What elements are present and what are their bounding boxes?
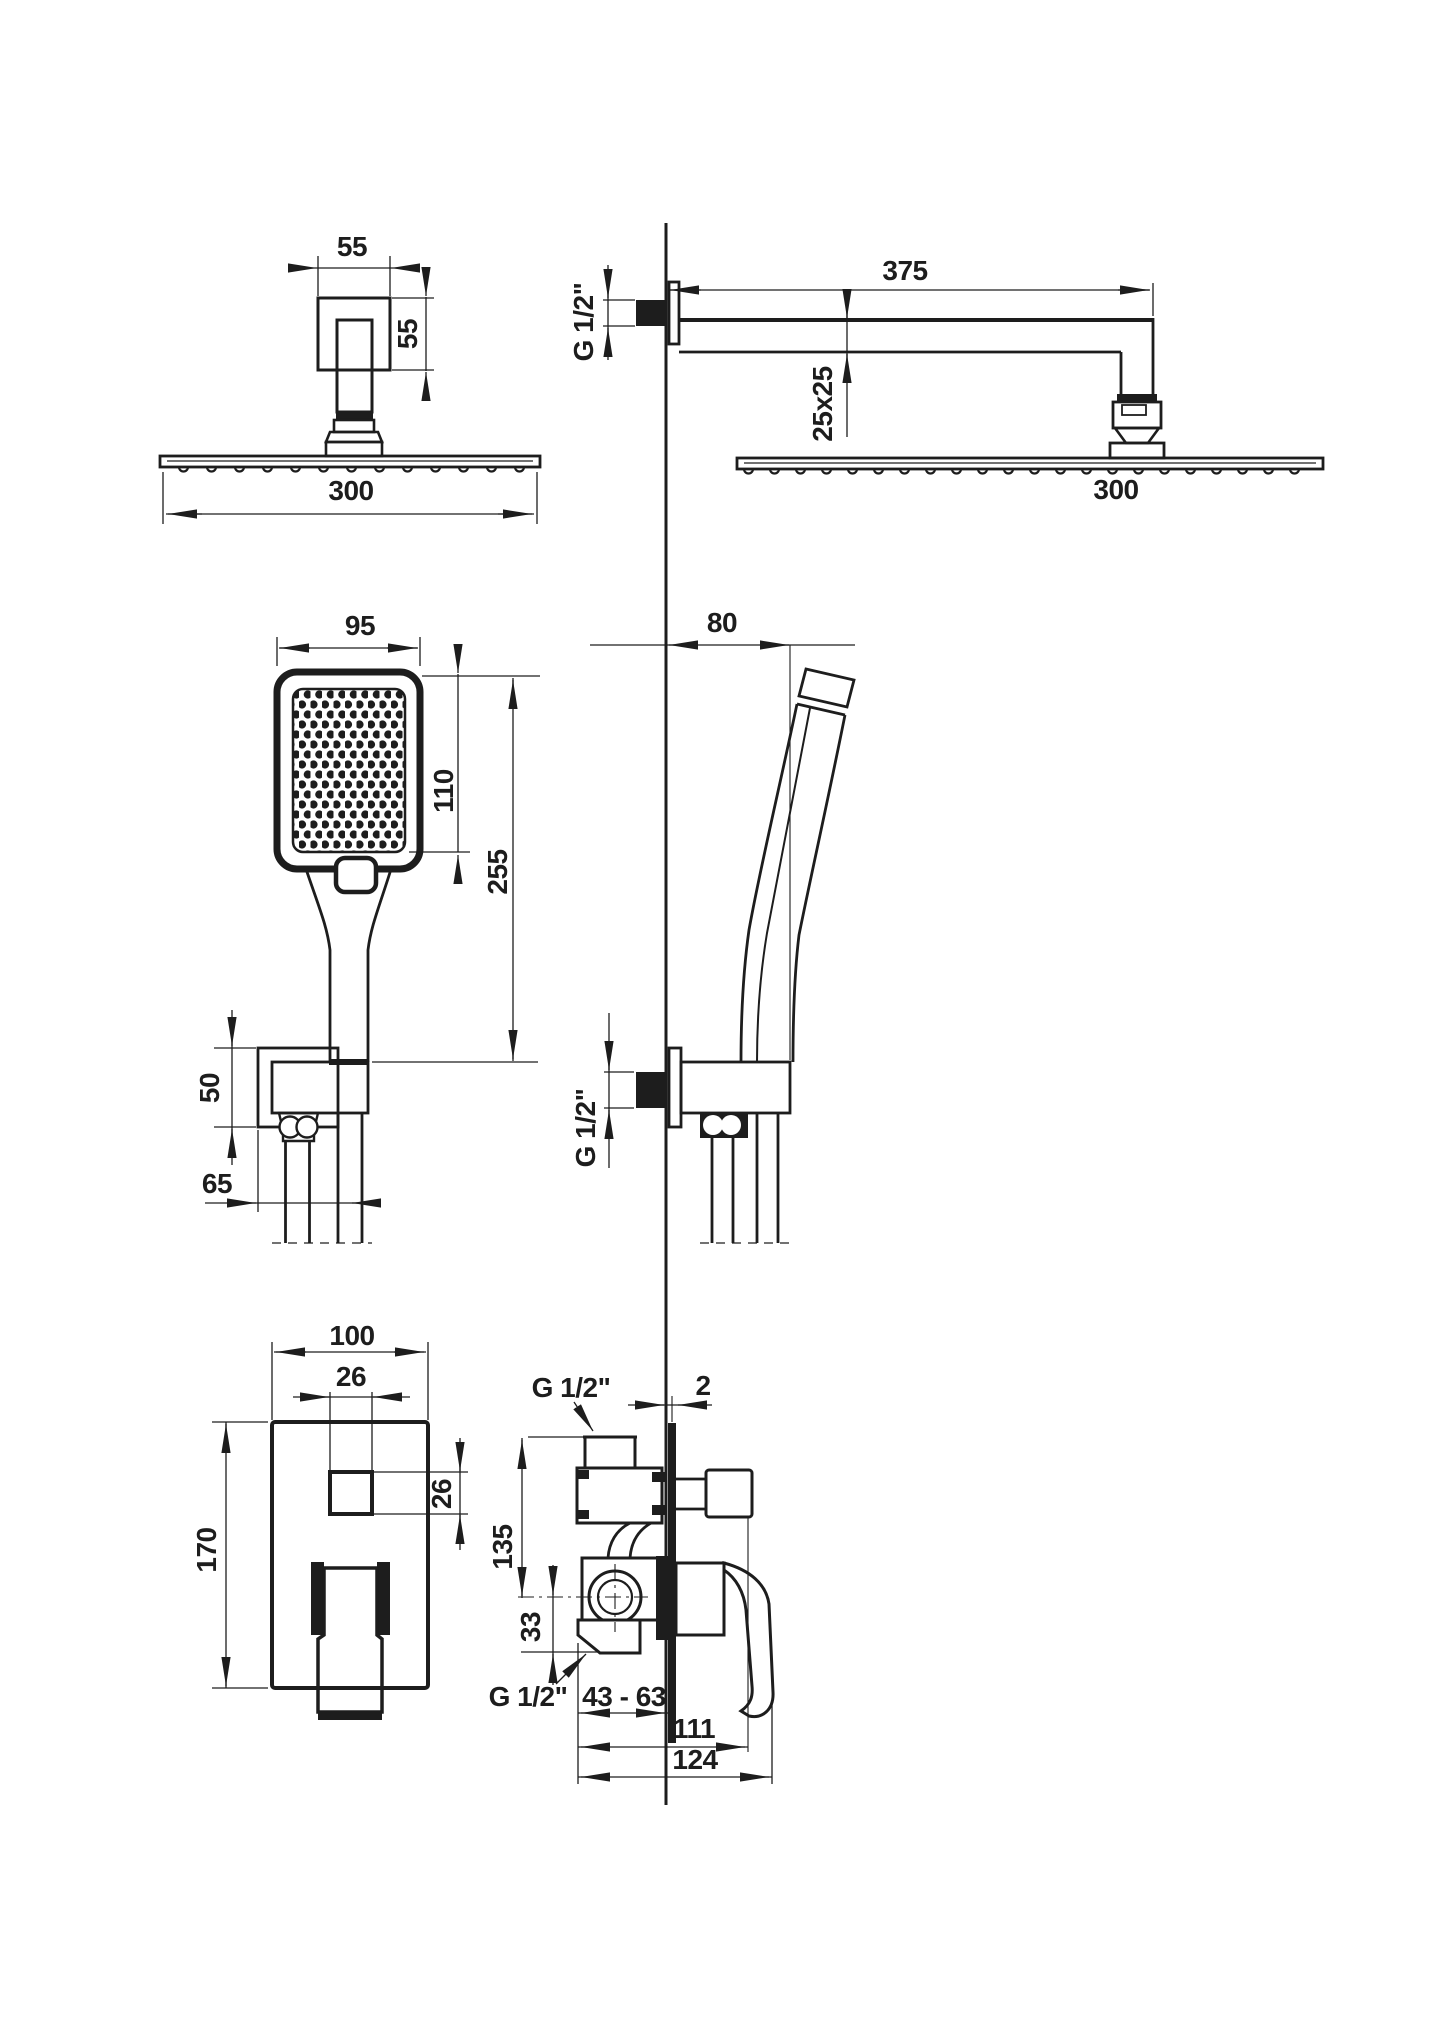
dim-label-arm-section: 25x25 <box>809 366 837 441</box>
dim-label-hose-offset: 65 <box>202 1170 232 1198</box>
dim-label-head-width-side: 300 <box>1093 476 1138 504</box>
view-shower-arm-side <box>603 223 1323 1805</box>
dim-label-hand-width: 95 <box>345 612 375 640</box>
dim-label-mixer-outlet-offset: 33 <box>517 1612 545 1642</box>
view-hand-shower-front <box>205 637 540 1243</box>
dim-label-head-width-front: 300 <box>328 477 373 505</box>
dim-label-holder-height: 50 <box>196 1073 224 1103</box>
dim-label-wall-offset: 80 <box>707 609 737 637</box>
dim-label-escutcheon-height: 55 <box>394 319 422 349</box>
technical-drawing-sheet: 55 55 300 375 G 1/2" 25x25 300 95 110 25… <box>0 0 1445 2043</box>
dim-label-hand-length: 255 <box>484 849 512 894</box>
dim-label-mixer-body-height: 135 <box>489 1524 517 1569</box>
dim-label-mixer-bottom-thread: G 1/2" <box>489 1683 568 1711</box>
dim-label-reach-inner: 111 <box>673 1715 715 1743</box>
dim-label-button-width: 26 <box>336 1363 366 1391</box>
dim-label-arm-reach: 375 <box>882 257 927 285</box>
dim-label-arm-thread: G 1/2" <box>570 283 598 362</box>
view-hand-shower-side <box>590 645 855 1243</box>
drawing-linework <box>0 0 1445 2043</box>
dim-label-hand-face-height: 110 <box>430 769 458 813</box>
dim-label-reach-outer: 124 <box>672 1746 717 1774</box>
dim-label-mixer-top-thread: G 1/2" <box>532 1374 611 1402</box>
dim-label-holder-thread: G 1/2" <box>572 1089 600 1168</box>
dim-label-mount-depth: 43 - 63 <box>582 1683 666 1711</box>
view-mixer-front <box>212 1342 468 1720</box>
dim-label-plate-height: 170 <box>193 1527 221 1572</box>
dim-label-plate-thickness: 2 <box>695 1372 710 1400</box>
dim-label-escutcheon-width: 55 <box>337 233 367 261</box>
dim-label-plate-width: 100 <box>329 1322 374 1350</box>
dim-label-button-height: 26 <box>428 1479 456 1509</box>
view-mixer-side <box>518 1396 773 1784</box>
